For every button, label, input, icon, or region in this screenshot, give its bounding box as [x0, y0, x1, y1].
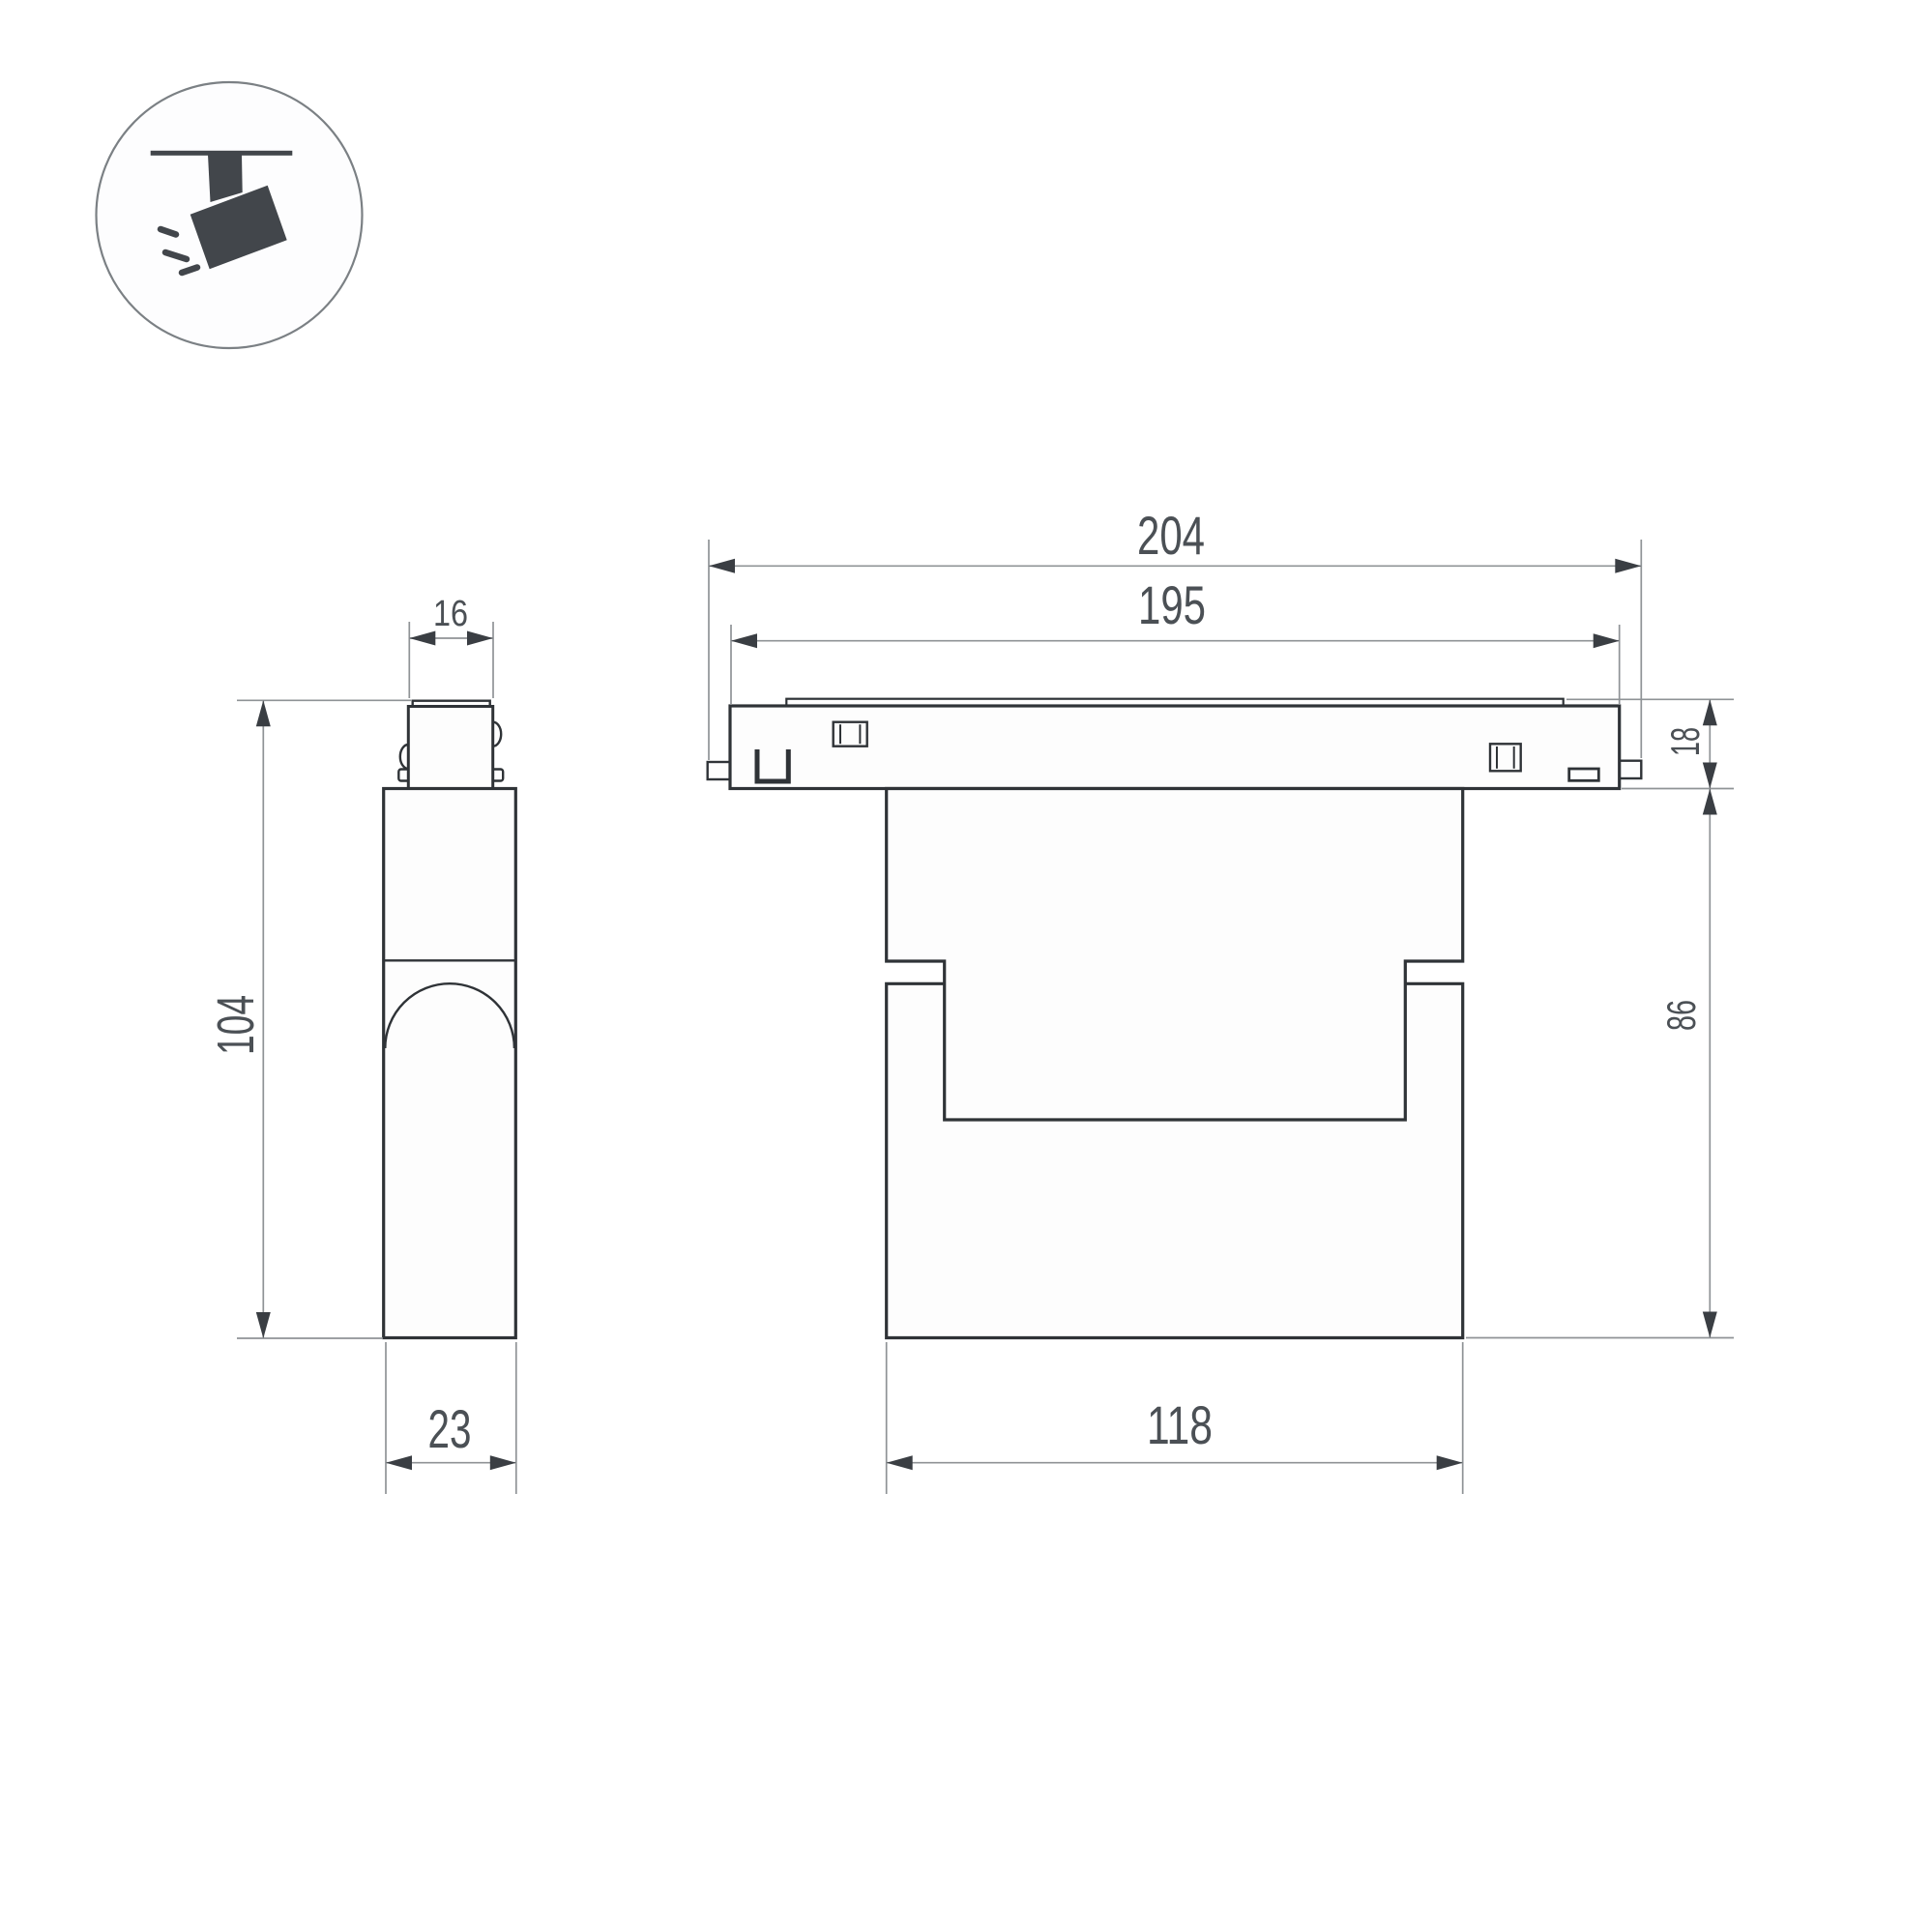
side-connector-body	[408, 707, 492, 789]
dim-connector-width: 16	[409, 594, 493, 698]
arrow-right	[1437, 1455, 1463, 1470]
dim-lamp-width-label: 118	[1147, 1394, 1213, 1455]
dim-overall-height-label: 104	[207, 995, 265, 1055]
side-view	[384, 701, 516, 1338]
dim-depth: 23	[386, 1342, 516, 1494]
technical-drawing-page: 16 104 23 204 195	[0, 0, 1932, 1932]
track-light-icon	[97, 82, 363, 348]
front-left-pin	[708, 762, 731, 779]
front-view	[708, 699, 1642, 1338]
dim-body-height-label: 86	[1658, 1000, 1704, 1031]
front-right-pin	[1620, 761, 1642, 778]
front-square-clip-right	[1490, 744, 1521, 771]
clip-frame	[834, 722, 867, 746]
side-body	[384, 789, 516, 1338]
arrow-left	[386, 1455, 412, 1470]
arrow-down	[1703, 1312, 1717, 1338]
arrow-right	[490, 1455, 516, 1470]
arrow-left	[709, 559, 735, 573]
dim-track-height-label: 18	[1662, 727, 1708, 756]
arrow-down	[256, 1312, 271, 1338]
arrow-down	[1703, 763, 1717, 789]
dim-overall-length-label: 204	[1137, 505, 1205, 566]
dim-connector-width-label: 16	[433, 594, 468, 634]
dim-depth-label: 23	[428, 1398, 472, 1459]
clip-frame	[1490, 744, 1521, 771]
front-lamp-body	[887, 789, 1463, 1121]
arrow-up	[1703, 699, 1717, 725]
dim-overall-height: 104	[207, 700, 412, 1338]
arrow-up	[256, 700, 271, 726]
arrow-up	[1703, 789, 1717, 815]
arrow-right	[467, 631, 493, 646]
dim-track-length: 195	[731, 574, 1620, 705]
technical-drawing: 16 104 23 204 195	[0, 0, 1932, 1932]
dim-lamp-width: 118	[887, 1342, 1463, 1494]
arrow-right	[1615, 559, 1641, 573]
dim-track-length-label: 195	[1138, 574, 1206, 635]
arrow-left	[409, 631, 435, 646]
dim-body-height: 86	[1466, 789, 1734, 1338]
front-square-clip-left	[834, 722, 867, 746]
arrow-left	[887, 1455, 913, 1470]
arrow-right	[1594, 633, 1620, 648]
front-slot	[1569, 769, 1599, 780]
arrow-left	[731, 633, 757, 648]
